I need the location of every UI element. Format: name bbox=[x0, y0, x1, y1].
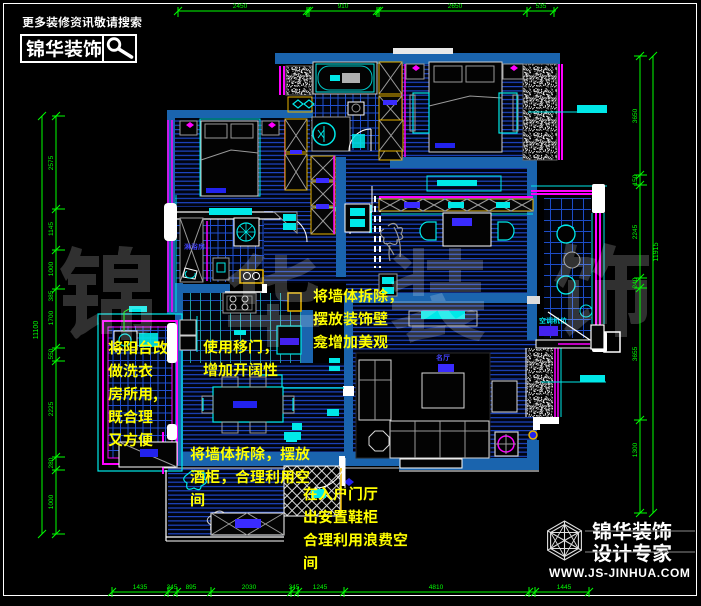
svg-text:2575: 2575 bbox=[48, 155, 55, 170]
svg-text:1000: 1000 bbox=[48, 261, 55, 276]
svg-text:2245: 2245 bbox=[632, 224, 639, 239]
svg-text:11915: 11915 bbox=[653, 242, 660, 261]
svg-text:3655: 3655 bbox=[632, 346, 639, 361]
svg-text:11100: 11100 bbox=[33, 321, 40, 340]
svg-text:1245: 1245 bbox=[313, 584, 328, 591]
svg-text:910: 910 bbox=[338, 3, 349, 10]
svg-text:385: 385 bbox=[48, 290, 55, 301]
svg-text:280: 280 bbox=[48, 457, 55, 468]
svg-text:240: 240 bbox=[632, 277, 639, 288]
svg-text:WWW.JS-JINHUA.COM: WWW.JS-JINHUA.COM bbox=[549, 566, 691, 580]
svg-text:150: 150 bbox=[632, 174, 639, 185]
svg-text:4810: 4810 bbox=[429, 584, 444, 591]
svg-text:1000: 1000 bbox=[48, 494, 55, 509]
svg-text:2225: 2225 bbox=[48, 401, 55, 416]
svg-text:1145: 1145 bbox=[48, 222, 55, 236]
svg-text:2650: 2650 bbox=[448, 3, 463, 10]
svg-text:345: 345 bbox=[289, 584, 300, 591]
svg-text:2030: 2030 bbox=[242, 584, 257, 591]
svg-text:550: 550 bbox=[48, 348, 55, 359]
svg-text:535: 535 bbox=[536, 3, 547, 10]
svg-text:1435: 1435 bbox=[133, 584, 148, 591]
svg-text:2450: 2450 bbox=[233, 3, 248, 10]
svg-text:1300: 1300 bbox=[632, 442, 639, 457]
svg-text:1445: 1445 bbox=[557, 584, 572, 591]
svg-text:895: 895 bbox=[186, 584, 197, 591]
svg-text:3650: 3650 bbox=[632, 108, 639, 123]
svg-text:345: 345 bbox=[167, 584, 178, 591]
svg-text:1700: 1700 bbox=[48, 310, 55, 325]
